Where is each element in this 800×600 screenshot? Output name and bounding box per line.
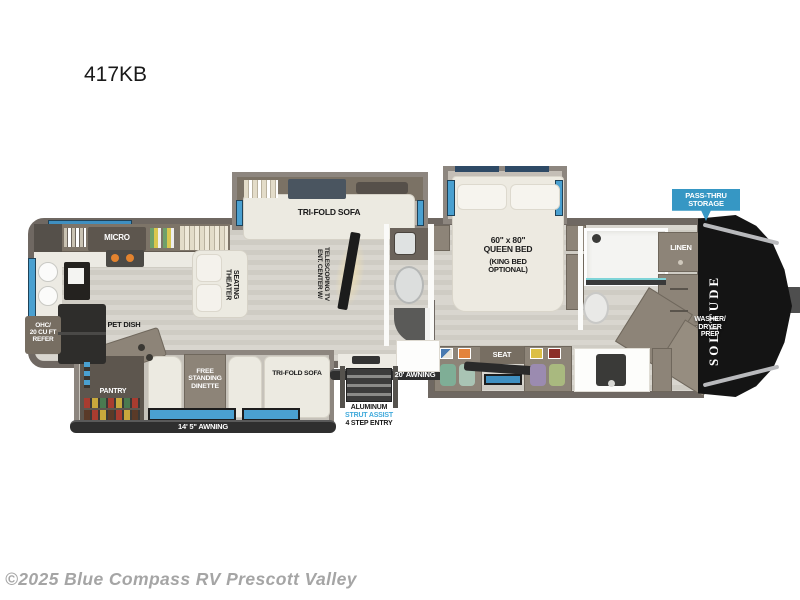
pantry-cans-icon [84,410,140,420]
brand-logo: SOLITUDE [706,246,722,366]
seat-label: SEAT [480,351,524,359]
theater-cushion-icon [196,284,222,312]
ent-center-label: ENT. CENTER W/ TELESCOPING TV [316,236,330,312]
awning-right-label: 20' AWNING [384,371,446,379]
page-title: 417KB [84,64,147,87]
bedroom-steps [396,340,440,372]
kitchen-sink-icon [38,262,58,282]
corner-cabinet [34,224,62,252]
theater-cushion-icon [196,254,222,282]
toilet-icon [583,292,609,324]
cabinet-books-icon [180,226,228,250]
burner-flame-icon [111,254,119,262]
bed-window-top1-icon [455,166,499,172]
pantry-shelf-icon [84,362,90,388]
burner-flame-icon [126,254,134,262]
clothes-icon [549,364,565,386]
cabinet-books-icon [150,228,176,248]
copyright-text: ©2025 Blue Compass RV Prescott Valley [5,570,357,589]
entry-label-line1: ALUMINUM [332,404,406,412]
nightstand-right [566,225,586,251]
tri-fold-sofa-bottom-label: TRI-FOLD SOFA [265,370,329,377]
island-sink-icon [138,344,145,351]
bed-size-label: 60" x 80" QUEEN BED [452,236,564,254]
sofa-slide-window-left-icon [236,200,243,226]
oven-door-icon [68,268,84,284]
linen-label: LINEN [658,244,704,252]
wall-art-icon [440,348,453,359]
bath-wall [384,224,389,346]
entry-counter-item-icon [352,356,380,364]
tri-fold-sofa-top-label: TRI-FOLD SOFA [255,208,403,217]
dinette-label: FREE STANDING DINETTE [184,368,226,390]
pass-thru-label: PASS-THRU STORAGE [672,192,740,208]
pillow-icon [510,184,560,210]
cabinet-books-icon [244,180,278,198]
pantry-cans-icon [84,398,140,408]
washer-dryer-label: WASHER/ DRYER PREP [682,316,738,339]
pantry-label: PANTRY [88,388,138,396]
refer-label: OHC/ 20 CU FT REFER [25,322,61,343]
soundbar-icon [356,182,408,194]
bath-sink-icon [394,232,416,255]
drawer-handle-icon [670,288,688,290]
toilet-icon [394,266,424,304]
showerhead-icon [592,234,601,243]
pet-dish-label: PET DISH [100,321,148,329]
clothes-icon [530,364,546,386]
awning-left-label: 14' 5" AWNING [70,423,336,431]
bed-window-left-icon [447,180,455,216]
drawer-handle-icon [670,310,688,312]
theater-seating-label: THEATER SEATING [224,256,239,314]
entry-label-line2: STRUT ASSIST [332,412,406,420]
wall-art-icon [530,348,543,359]
wall-art-icon [458,348,471,359]
entry-step-rail-icon [340,366,345,408]
fridge-split-icon [58,332,106,335]
shower-glass-icon [586,278,666,285]
linen-knob-icon [678,260,683,265]
cabinet-books-icon [64,228,86,247]
sofa-slide-window-right-icon [417,200,424,226]
floorplan-image: 417KB ©2025 Blue Compass RV Prescott Val… [0,0,800,600]
faucet-icon [608,380,615,387]
island-sink-icon [146,354,153,361]
bed-option-label: (KING BED OPTIONAL) [452,258,564,274]
bedroom-side-cabinet [652,348,672,392]
kitchen-sink-icon [38,286,58,306]
kitchen-side-window-icon [28,258,36,320]
floor-mat-icon [484,374,522,385]
cabinet-decor-icon [288,179,346,199]
bath-wall [578,226,583,330]
pillow-icon [457,184,507,210]
bed-window-top2-icon [505,166,549,172]
micro-label: MICRO [88,234,146,243]
wall-art-icon [548,348,561,359]
entry-label-line3: 4 STEP ENTRY [332,420,406,428]
